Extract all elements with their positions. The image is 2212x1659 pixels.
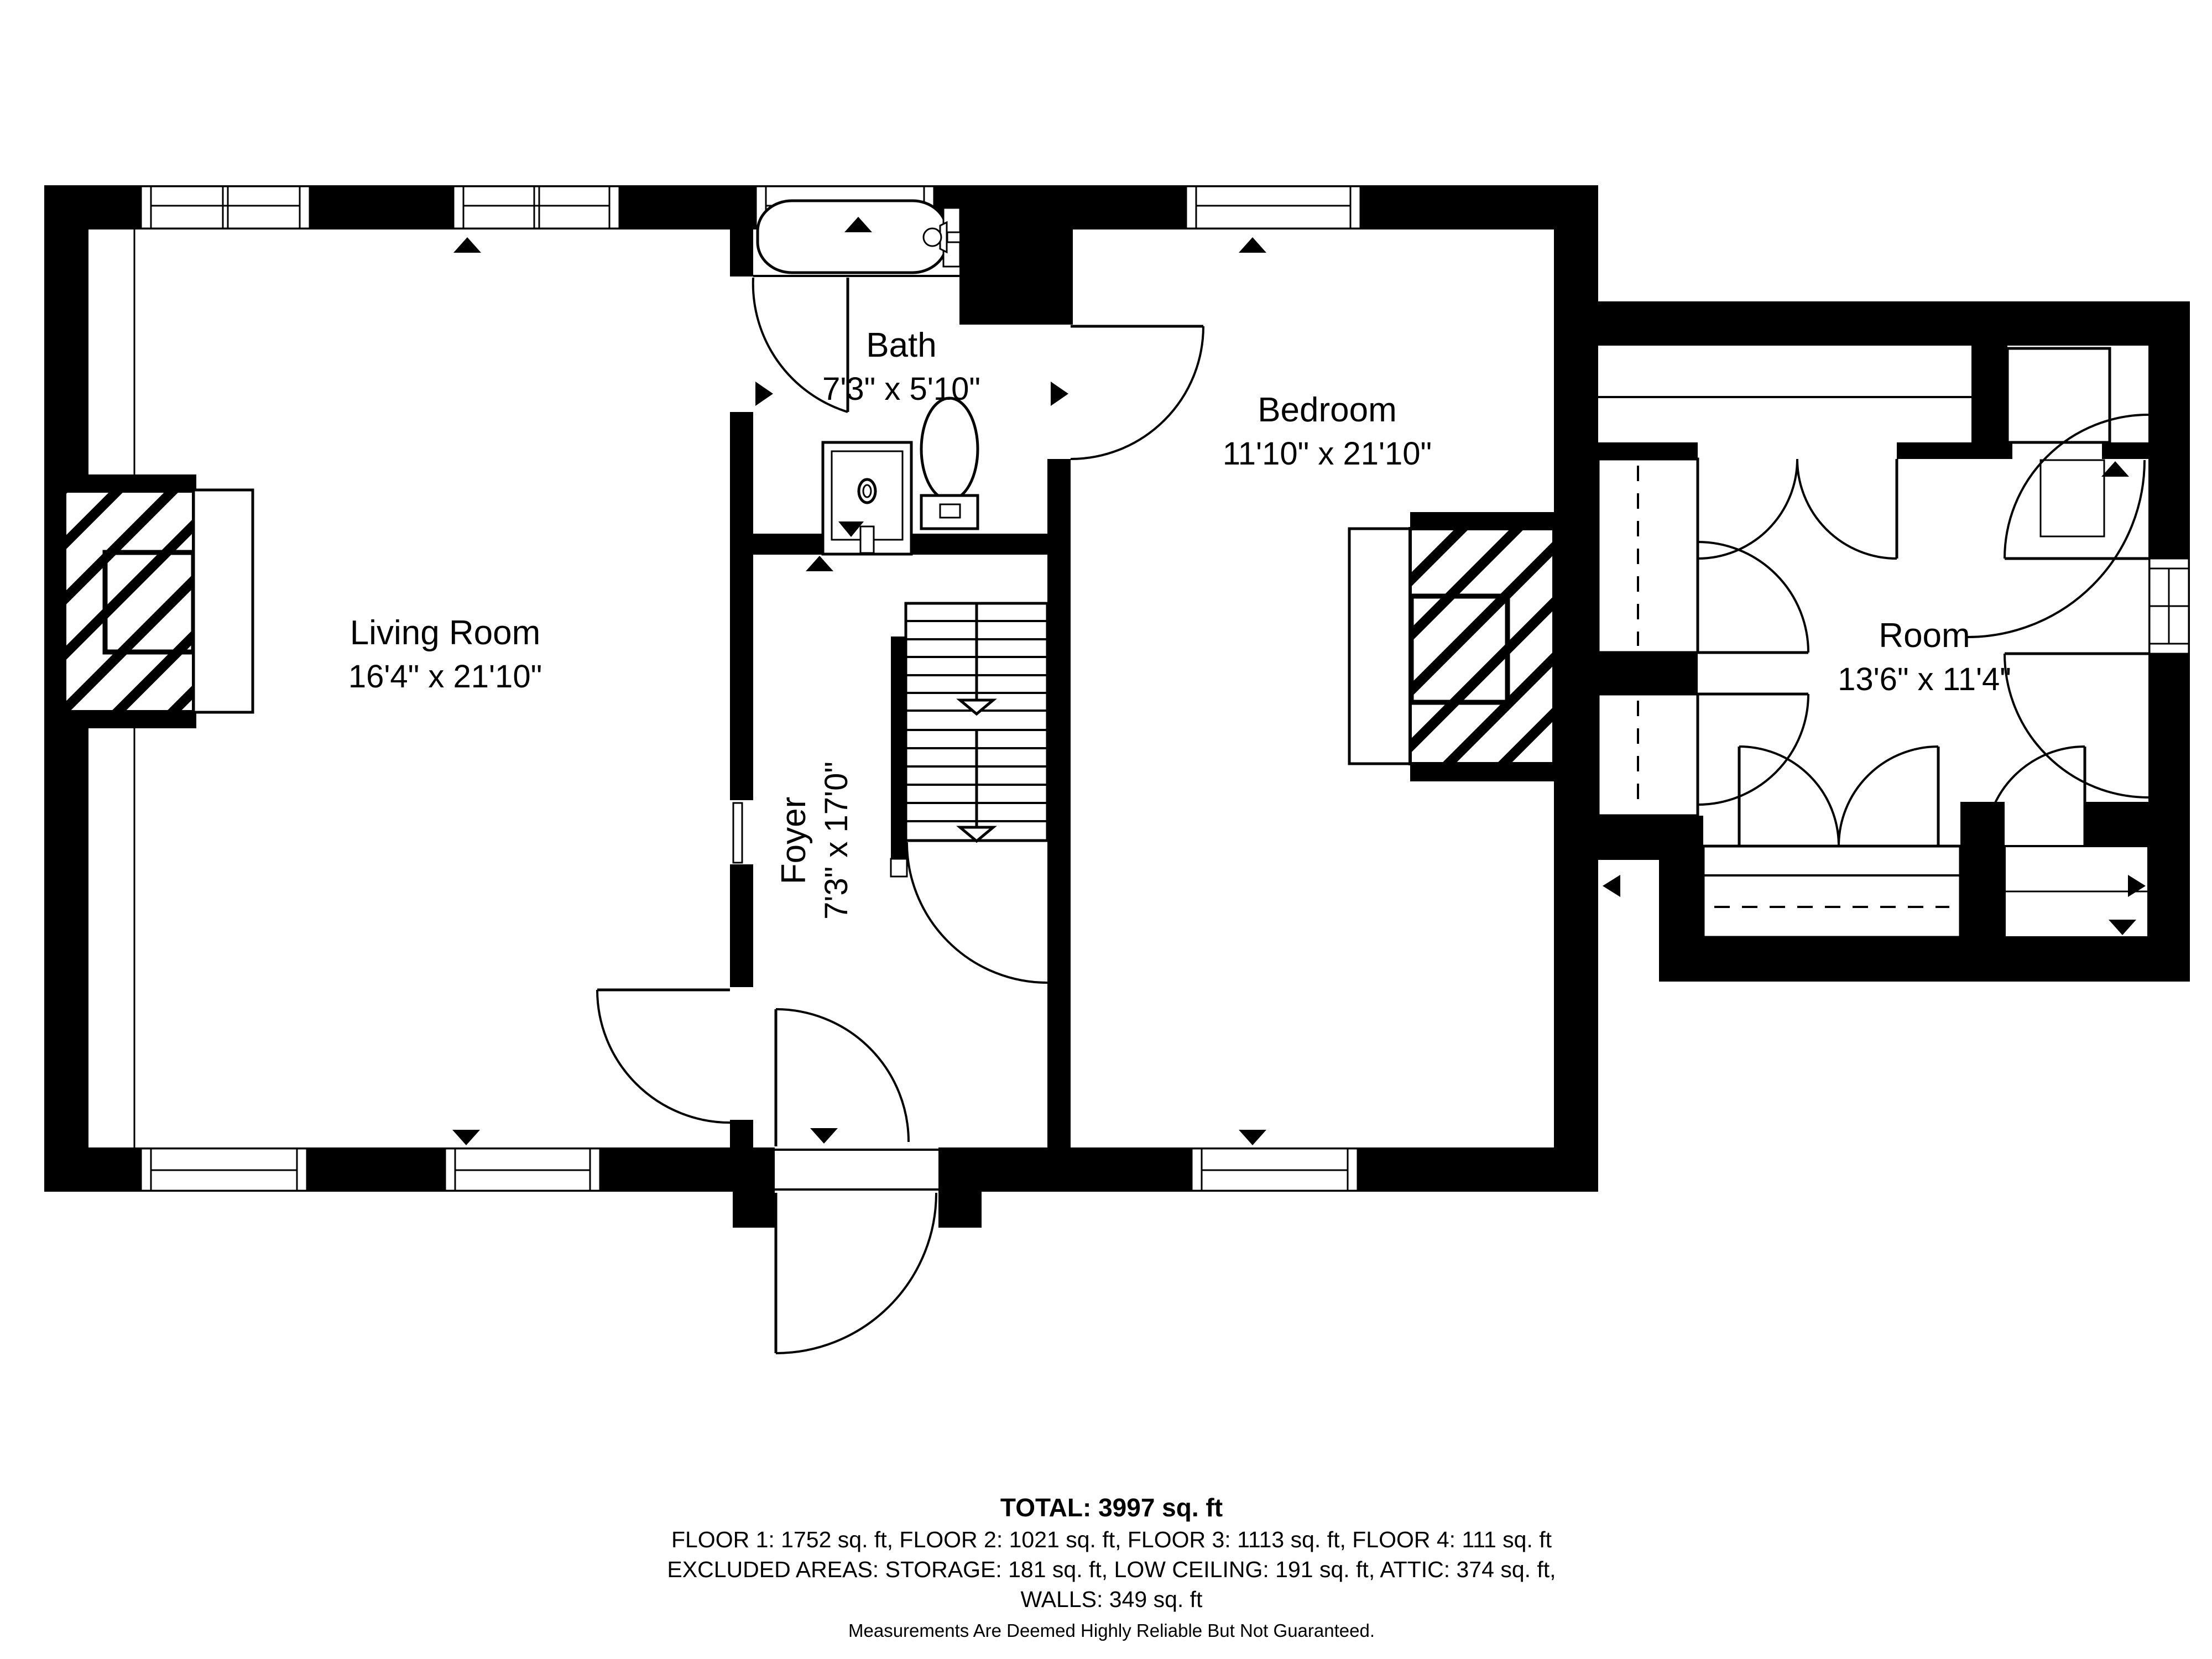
- door-foyer-living: [597, 990, 730, 1123]
- bedroom-name: Bedroom: [1258, 391, 1397, 429]
- window-wing-right: [2150, 559, 2189, 654]
- marker-down-icon: [452, 1130, 480, 1145]
- wing-closet-upper: [1598, 459, 1698, 653]
- wing-closet-lower: [1598, 694, 1698, 816]
- door-wing-closet-upper: [1698, 542, 1808, 653]
- marker-up-icon: [2101, 461, 2129, 477]
- fireplace-living: [65, 229, 253, 1147]
- foyer-dims: 7'3" x 17'0": [818, 761, 854, 920]
- bathtub: [753, 201, 960, 276]
- marker-right-icon: [755, 382, 773, 406]
- door-entry-outer: [776, 1193, 936, 1353]
- window-bedroom-top: [1186, 186, 1360, 228]
- summary-block: TOTAL: 3997 sq. ft FLOOR 1: 1752 sq. ft,…: [667, 1493, 1556, 1641]
- window-living-bottom-2: [445, 1149, 600, 1191]
- label-bath: Bath 7'3" x 5'10": [822, 326, 980, 407]
- door-entry-inner: [776, 1009, 909, 1146]
- entry-threshold: [775, 1146, 938, 1193]
- summary-walls: WALLS: 349 sq. ft: [1021, 1587, 1203, 1612]
- marker-left-icon: [1603, 875, 1620, 897]
- marker-down-icon: [1239, 1130, 1266, 1145]
- room-labels: Living Room 16'4" x 21'10" Bath 7'3" x 5…: [348, 326, 2011, 920]
- foyer-name: Foyer: [775, 797, 813, 884]
- door-bath-bedroom: [1071, 326, 1203, 459]
- door-stairs: [907, 842, 1047, 983]
- marker-up-icon: [453, 237, 481, 253]
- door-wing-right-lower: [2005, 654, 2148, 797]
- bath-dims: 7'3" x 5'10": [822, 371, 980, 407]
- bath-name: Bath: [866, 326, 937, 364]
- pass-through-opening: [730, 799, 753, 865]
- marker-up-icon: [806, 556, 833, 571]
- wing-storage: [1703, 846, 1960, 937]
- label-room: Room 13'6" x 11'4": [1838, 617, 2011, 697]
- marker-down-icon: [2109, 920, 2136, 935]
- window-bedroom-bottom: [1192, 1149, 1358, 1191]
- summary-disclaimer: Measurements Are Deemed Highly Reliable …: [848, 1620, 1375, 1641]
- window-living-bottom-1: [141, 1149, 307, 1191]
- window-living-top-1: [141, 186, 310, 228]
- label-bedroom: Bedroom 11'10" x 21'10": [1223, 391, 1432, 472]
- marker-right-icon: [1051, 382, 1068, 406]
- floor-plan: Living Room 16'4" x 21'10" Bath 7'3" x 5…: [0, 0, 2212, 1659]
- summary-total: TOTAL: 3997 sq. ft: [1000, 1493, 1223, 1522]
- bedroom-dims: 11'10" x 21'10": [1223, 436, 1432, 472]
- toilet: [921, 398, 978, 529]
- marker-up-icon: [1239, 237, 1266, 253]
- label-living-room: Living Room 16'4" x 21'10": [348, 614, 542, 695]
- door-wing-french-top: [1698, 459, 1897, 559]
- summary-excluded: EXCLUDED AREAS: STORAGE: 181 sq. ft, LOW…: [667, 1557, 1556, 1582]
- staircase: [891, 603, 1047, 877]
- marker-right-icon: [2128, 875, 2146, 897]
- label-foyer: Foyer 7'3" x 17'0": [775, 761, 854, 920]
- living-room-name: Living Room: [350, 614, 541, 652]
- marker-down-icon: [810, 1128, 838, 1144]
- fireplace-bedroom: [1349, 529, 1554, 764]
- door-wing-french-bottom: [1739, 747, 1938, 846]
- door-wing-alcove: [1968, 460, 2145, 637]
- window-living-top-2: [453, 186, 619, 228]
- wing-cabinet: [2007, 348, 2110, 442]
- living-room-dims: 16'4" x 21'10": [348, 659, 542, 695]
- sink-vanity: [823, 442, 911, 554]
- room-dims: 13'6" x 11'4": [1838, 661, 2011, 697]
- room-name: Room: [1879, 617, 1970, 655]
- door-wing-closet-lower: [1698, 694, 1808, 805]
- summary-floors: FLOOR 1: 1752 sq. ft, FLOOR 2: 1021 sq. …: [671, 1527, 1552, 1552]
